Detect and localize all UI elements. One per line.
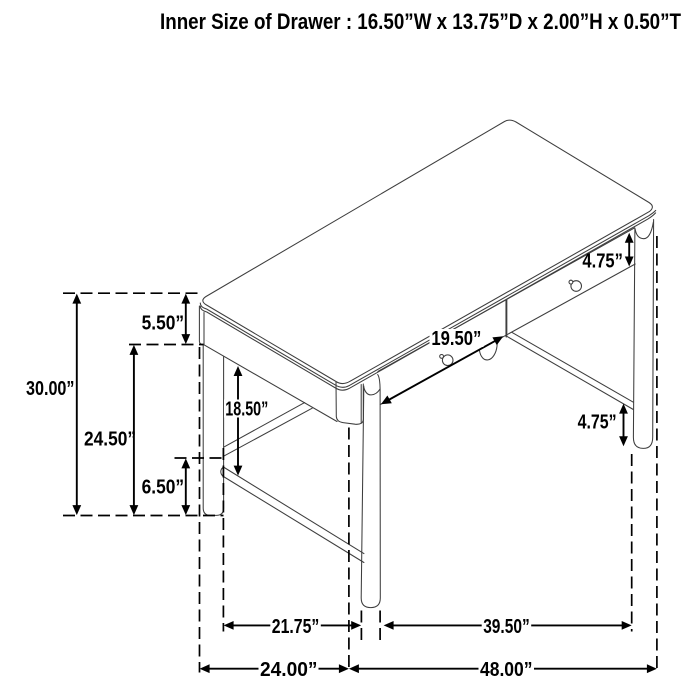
svg-text:4.75”: 4.75” bbox=[582, 250, 623, 272]
svg-text:24.50”: 24.50” bbox=[84, 428, 136, 450]
svg-text:30.00”: 30.00” bbox=[26, 378, 75, 400]
svg-text:21.75”: 21.75” bbox=[272, 616, 320, 638]
svg-text:5.50”: 5.50” bbox=[142, 313, 185, 335]
svg-text:6.50”: 6.50” bbox=[142, 477, 185, 499]
svg-text:39.50”: 39.50” bbox=[483, 616, 530, 638]
svg-text:18.50”: 18.50” bbox=[225, 399, 268, 421]
svg-text:4.75”: 4.75” bbox=[578, 412, 617, 434]
svg-text:24.00”: 24.00” bbox=[260, 659, 318, 681]
svg-text:48.00”: 48.00” bbox=[480, 659, 533, 681]
svg-text:19.50”: 19.50” bbox=[431, 328, 481, 350]
svg-text:Inner Size of Drawer : 16.50”W: Inner Size of Drawer : 16.50”W x 13.75”D… bbox=[160, 9, 681, 34]
